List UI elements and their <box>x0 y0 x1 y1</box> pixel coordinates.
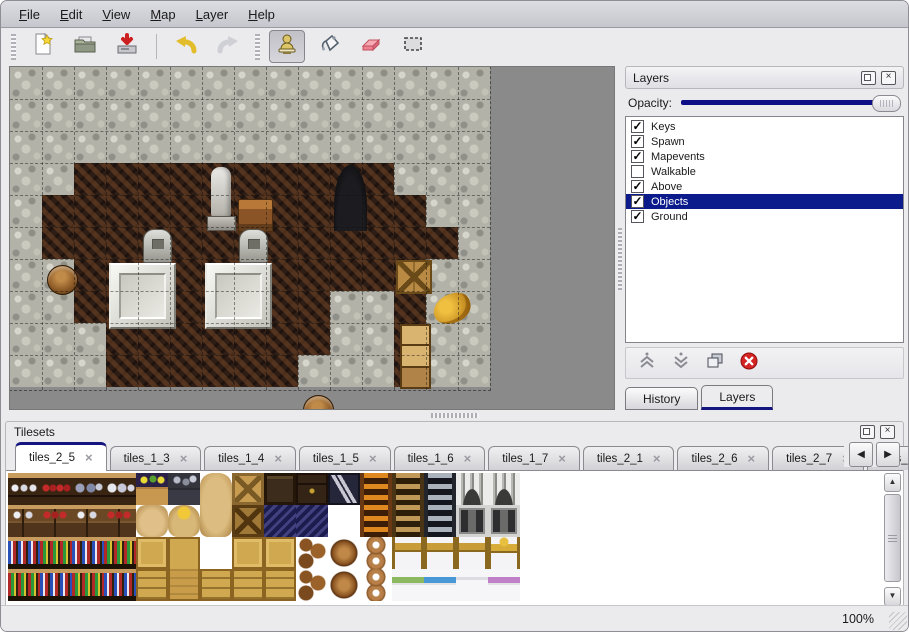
map-tile-wall[interactable] <box>298 99 330 131</box>
tile-crate-w[interactable] <box>200 569 232 601</box>
eraser-tool-button[interactable] <box>353 30 389 63</box>
map-tile-floor[interactable] <box>298 227 330 259</box>
map-tile-wall[interactable] <box>426 195 458 227</box>
close-tab-icon[interactable]: × <box>180 454 188 464</box>
opacity-slider-handle[interactable] <box>872 95 901 112</box>
tile-shelf-dishes[interactable] <box>8 473 40 505</box>
tile-books2[interactable] <box>104 537 136 569</box>
map-tile-wall[interactable] <box>458 195 490 227</box>
tile-stone-door[interactable] <box>488 505 520 537</box>
scroll-tabs-left-button[interactable]: ◀ <box>849 442 873 467</box>
tile-empty[interactable] <box>328 505 360 537</box>
map-tile-wall[interactable] <box>234 131 266 163</box>
map-tile-wall[interactable] <box>10 163 42 195</box>
tile-z-sign[interactable] <box>328 473 360 505</box>
map-object-grave[interactable] <box>239 229 268 263</box>
map-tile-wall[interactable] <box>170 99 202 131</box>
map-tile-wall[interactable] <box>42 131 74 163</box>
tile-cab1[interactable] <box>8 505 40 537</box>
tile-dark-chest[interactable] <box>296 473 328 505</box>
map-tile-wall[interactable] <box>266 99 298 131</box>
map-tile-wall[interactable] <box>458 163 490 195</box>
map-tile-floor[interactable] <box>74 163 106 195</box>
close-panel-icon[interactable]: × <box>880 425 895 439</box>
map-tile-wall[interactable] <box>10 67 42 99</box>
app-window: FileEditViewMapLayerHelp <box>0 0 909 632</box>
tile-empty[interactable] <box>520 505 552 537</box>
tile-cab2[interactable] <box>104 505 136 537</box>
map-tile-wall[interactable] <box>10 195 42 227</box>
map-tile-wall[interactable] <box>362 131 394 163</box>
map-tile-wall[interactable] <box>10 323 42 355</box>
layer-list[interactable]: ✓Keys✓Spawn✓MapeventsWalkable✓Above✓Obje… <box>625 116 904 343</box>
duplicate-layer-button[interactable] <box>704 352 726 374</box>
grid-line <box>266 67 267 390</box>
tile-crate-x[interactable] <box>232 473 264 505</box>
close-tab-icon[interactable]: × <box>748 454 756 464</box>
tileset-tab-tiles_1_6[interactable]: tiles_1_6× <box>394 446 486 470</box>
map-tile-wall[interactable] <box>10 355 42 387</box>
menubar: FileEditViewMapLayerHelp <box>1 1 908 28</box>
map-tile-wall[interactable] <box>42 355 74 387</box>
tile-dark-crate[interactable] <box>264 473 296 505</box>
tile-books1[interactable] <box>40 569 72 601</box>
map-tile-wall[interactable] <box>298 131 330 163</box>
grid-line <box>10 195 490 196</box>
tile-bed-purple[interactable] <box>488 569 520 601</box>
map-tile-floor[interactable] <box>106 227 138 259</box>
tilesets-panel-title: Tilesets <box>14 425 55 439</box>
menu-item-layer[interactable]: Layer <box>186 3 239 26</box>
opacity-label: Opacity: <box>628 96 672 110</box>
rect-select-tool-button[interactable] <box>395 30 431 63</box>
map-tile-wall[interactable] <box>330 67 362 99</box>
checkbox-checked[interactable]: ✓ <box>631 150 644 163</box>
scroll-up-button[interactable]: ▲ <box>884 473 901 492</box>
grid-line <box>10 291 490 292</box>
tile-ladder-o[interactable] <box>360 473 392 505</box>
tile-gold-sack[interactable] <box>168 505 200 537</box>
map-object-barrel[interactable] <box>303 395 334 410</box>
tile-arch[interactable] <box>456 473 488 505</box>
tile-bed-blue[interactable] <box>424 569 456 601</box>
map-tile-wall[interactable] <box>10 259 42 291</box>
map-tile-wall[interactable] <box>330 355 362 387</box>
tile-crate-w[interactable] <box>232 569 264 601</box>
tile-empty[interactable] <box>200 537 232 569</box>
map-tile-wall[interactable] <box>458 227 490 259</box>
menu-item-help[interactable]: Help <box>238 3 285 26</box>
map-tile-floor[interactable] <box>266 163 298 195</box>
map-tile-wall[interactable] <box>202 99 234 131</box>
map-tile-floor[interactable] <box>170 227 202 259</box>
float-panel-icon[interactable] <box>861 71 876 85</box>
map-tile-floor[interactable] <box>330 259 362 291</box>
eraser-tool-icon <box>359 32 383 61</box>
tile-empty[interactable] <box>520 537 552 569</box>
tile-blue-pile[interactable] <box>296 505 328 537</box>
scroll-down-button[interactable]: ▼ <box>884 587 901 606</box>
tile-crate[interactable] <box>264 537 296 569</box>
grid-line <box>394 67 395 390</box>
tilesets-panel-header: Tilesets × <box>6 422 903 442</box>
tile-bed-white[interactable] <box>456 569 488 601</box>
tile-bed-head[interactable] <box>392 537 424 569</box>
map-tile-wall[interactable] <box>74 355 106 387</box>
menu-item-map[interactable]: Map <box>140 3 185 26</box>
map-tile-wall[interactable] <box>426 67 458 99</box>
undo-button[interactable] <box>168 30 204 63</box>
map-tile-wall[interactable] <box>362 291 394 323</box>
tab-layers[interactable]: Layers <box>701 385 773 410</box>
map-tile-wall[interactable] <box>426 99 458 131</box>
map-tile-wall[interactable] <box>10 99 42 131</box>
tile-books1[interactable] <box>104 569 136 601</box>
map-content[interactable] <box>10 67 490 390</box>
tileset-tab-tiles_2_1[interactable]: tiles_2_1× <box>583 446 675 470</box>
map-tile-wall[interactable] <box>298 355 330 387</box>
tile-sack[interactable] <box>136 505 168 537</box>
tile-crate-tall2[interactable] <box>168 569 200 601</box>
map-tile-wall[interactable] <box>74 323 106 355</box>
map-tile-wall[interactable] <box>458 99 490 131</box>
tileset-tab-tiles_2_6[interactable]: tiles_2_6× <box>677 446 769 470</box>
grid-line <box>458 67 459 390</box>
map-tile-floor[interactable] <box>298 291 330 323</box>
map-tile-floor[interactable] <box>106 195 138 227</box>
save-button[interactable] <box>109 30 145 63</box>
map-tile-wall[interactable] <box>234 99 266 131</box>
tile-empty[interactable] <box>520 473 552 505</box>
map-tile-wall[interactable] <box>266 131 298 163</box>
delete-layer-button[interactable] <box>738 352 760 374</box>
map-tile-wall[interactable] <box>106 131 138 163</box>
tileset-tab-label: tiles_1_6 <box>408 453 454 465</box>
map-tile-wall[interactable] <box>106 99 138 131</box>
map-tile-wall[interactable] <box>458 259 490 291</box>
tile-books2[interactable] <box>72 569 104 601</box>
map-tile-wall[interactable] <box>394 163 426 195</box>
layer-row-spawn[interactable]: ✓Spawn <box>626 134 903 149</box>
tile-crate-w[interactable] <box>264 569 296 601</box>
map-tile-floor[interactable] <box>42 195 74 227</box>
tile-books2[interactable] <box>40 537 72 569</box>
tile-ladder-b[interactable] <box>392 473 424 505</box>
map-tile-floor[interactable] <box>138 195 170 227</box>
tile-empty[interactable] <box>520 569 552 601</box>
close-panel-icon[interactable]: × <box>881 71 896 85</box>
map-tile-floor[interactable] <box>394 195 426 227</box>
tile-cab2[interactable] <box>40 505 72 537</box>
tile-stone-door[interactable] <box>456 505 488 537</box>
map-tile-floor[interactable] <box>74 291 106 323</box>
tile-crate-tall[interactable] <box>168 537 200 569</box>
map-tile-wall[interactable] <box>426 163 458 195</box>
map-tile-wall[interactable] <box>458 323 490 355</box>
grid-line <box>10 131 490 132</box>
horizontal-splitter[interactable] <box>1 410 908 421</box>
tile-bed-head[interactable] <box>424 537 456 569</box>
tile-shelf-red[interactable] <box>40 473 72 505</box>
map-tile-wall[interactable] <box>42 291 74 323</box>
map-tile-wall[interactable] <box>74 99 106 131</box>
tile-pots[interactable] <box>360 569 392 601</box>
splitter-grip[interactable] <box>431 413 479 418</box>
map-tile-floor[interactable] <box>362 163 394 195</box>
opacity-slider-track <box>681 100 898 105</box>
tileset-scrollbar[interactable]: ▲ ▼ <box>884 473 901 606</box>
map-tile-floor[interactable] <box>170 195 202 227</box>
tile-corn[interactable] <box>136 473 168 505</box>
stamp-tool-button[interactable] <box>269 30 305 63</box>
tile-shelf-pots[interactable] <box>72 473 104 505</box>
tileset-tab-label: tiles_1_7 <box>502 453 548 465</box>
layer-row-above[interactable]: ✓Above <box>626 179 903 194</box>
map-tile-floor[interactable] <box>394 291 426 323</box>
map-tile-wall[interactable] <box>10 227 42 259</box>
map-tile-wall[interactable] <box>394 99 426 131</box>
map-tile-wall[interactable] <box>330 131 362 163</box>
checkbox-unchecked[interactable] <box>631 165 644 178</box>
map-tile-wall[interactable] <box>330 291 362 323</box>
checkbox-checked[interactable]: ✓ <box>631 120 644 133</box>
map-tile-wall[interactable] <box>138 67 170 99</box>
tile-books1[interactable] <box>72 537 104 569</box>
scroll-tabs-right-button[interactable]: ▶ <box>876 442 900 467</box>
tileset-tab-tiles_1_3[interactable]: tiles_1_3× <box>110 446 202 470</box>
opacity-slider[interactable] <box>681 94 901 111</box>
layer-row-ground[interactable]: ✓Ground <box>626 209 903 224</box>
checkbox-checked[interactable]: ✓ <box>631 210 644 223</box>
tileset-tab-label: tiles_2_6 <box>691 453 737 465</box>
map-tile-wall[interactable] <box>42 67 74 99</box>
layer-row-keys[interactable]: ✓Keys <box>626 119 903 134</box>
map-tile-wall[interactable] <box>362 323 394 355</box>
map-tile-wall[interactable] <box>362 355 394 387</box>
tile-shelf-jugs[interactable] <box>104 473 136 505</box>
map-tile-wall[interactable] <box>74 131 106 163</box>
close-tab-icon[interactable]: × <box>274 454 282 464</box>
map-tile-floor[interactable] <box>298 259 330 291</box>
tile-barrel[interactable] <box>328 537 360 569</box>
map-tile-floor[interactable] <box>234 355 266 387</box>
tile-barrel[interactable] <box>328 569 360 601</box>
raise-layer-button[interactable] <box>636 352 658 374</box>
tileset-tab-tiles_1_5[interactable]: tiles_1_5× <box>299 446 391 470</box>
map-tile-wall[interactable] <box>426 131 458 163</box>
map-tile-wall[interactable] <box>202 131 234 163</box>
checkbox-checked[interactable]: ✓ <box>631 180 644 193</box>
map-tile-wall[interactable] <box>42 323 74 355</box>
map-tile-floor[interactable] <box>138 163 170 195</box>
layer-row-mapevents[interactable]: ✓Mapevents <box>626 149 903 164</box>
close-tab-icon[interactable]: × <box>558 454 566 464</box>
map-tile-wall[interactable] <box>170 67 202 99</box>
tile-crate-w[interactable] <box>136 569 168 601</box>
tileset-view[interactable]: ▲ ▼ <box>6 471 903 608</box>
toolbar-separator <box>156 34 157 59</box>
redo-button[interactable] <box>210 30 246 63</box>
map-tile-floor[interactable] <box>298 323 330 355</box>
map-object-platform[interactable] <box>109 263 176 329</box>
map-tile-floor[interactable] <box>202 227 234 259</box>
map-tile-wall[interactable] <box>362 99 394 131</box>
menu-item-file[interactable]: File <box>9 3 50 26</box>
tile-crate[interactable] <box>232 537 264 569</box>
grid-line <box>234 67 235 390</box>
close-tab-icon[interactable]: × <box>653 454 661 464</box>
map-tile-wall[interactable] <box>10 131 42 163</box>
map-tile-floor[interactable] <box>74 195 106 227</box>
map-tile-floor[interactable] <box>330 227 362 259</box>
map-tile-wall[interactable] <box>74 67 106 99</box>
splitter-grip[interactable] <box>618 228 622 290</box>
map-tile-floor[interactable] <box>170 163 202 195</box>
map-canvas[interactable] <box>9 66 615 410</box>
close-tab-icon[interactable]: × <box>85 453 93 463</box>
map-tile-wall[interactable] <box>234 67 266 99</box>
tile-ladder-g[interactable] <box>424 473 456 505</box>
map-tile-floor[interactable] <box>170 355 202 387</box>
tab-scroll-arrows: ◀ ▶ <box>844 442 900 467</box>
tilesets-panel: Tilesets × tiles_2_5×tiles_1_3×tiles_1_4… <box>5 421 904 609</box>
checkbox-checked[interactable]: ✓ <box>631 195 644 208</box>
tile-ladder-o[interactable] <box>360 505 392 537</box>
map-tile-floor[interactable] <box>362 259 394 291</box>
tab-history[interactable]: History <box>625 387 698 410</box>
map-tile-wall[interactable] <box>394 131 426 163</box>
tile-sack-top[interactable] <box>200 473 232 505</box>
close-tab-icon[interactable]: × <box>464 454 472 464</box>
redo-icon <box>216 32 240 61</box>
map-tile-wall[interactable] <box>330 323 362 355</box>
tileset-tab-label: tiles_2_1 <box>597 453 643 465</box>
map-tile-floor[interactable] <box>74 227 106 259</box>
tile-cab1[interactable] <box>72 505 104 537</box>
tile-books2[interactable] <box>8 569 40 601</box>
tile-barrels[interactable] <box>296 537 328 569</box>
lower-layer-icon <box>671 351 691 376</box>
fill-tool-icon <box>317 32 341 61</box>
tile-pots[interactable] <box>360 537 392 569</box>
open-button[interactable] <box>67 30 103 63</box>
map-tile-wall[interactable] <box>458 131 490 163</box>
menu-item-edit[interactable]: Edit <box>50 3 92 26</box>
fill-tool-button[interactable] <box>311 30 347 63</box>
map-tile-wall[interactable] <box>42 99 74 131</box>
map-tile-wall[interactable] <box>362 67 394 99</box>
float-panel-icon[interactable] <box>860 425 875 439</box>
map-tile-floor[interactable] <box>106 355 138 387</box>
map-tile-wall[interactable] <box>138 99 170 131</box>
toolbar-drag-handle[interactable] <box>11 34 16 60</box>
menu-item-view[interactable]: View <box>92 3 140 26</box>
zoom-level-status: 100% <box>842 612 874 626</box>
map-tile-floor[interactable] <box>202 355 234 387</box>
tile-blue-pile[interactable] <box>264 505 296 537</box>
tile-crate[interactable] <box>136 537 168 569</box>
map-object-platform[interactable] <box>205 263 272 329</box>
map-tile-wall[interactable] <box>202 67 234 99</box>
layer-row-walkable[interactable]: Walkable <box>626 164 903 179</box>
statusbar: 100% <box>1 605 908 631</box>
map-tile-wall[interactable] <box>298 67 330 99</box>
map-tile-floor[interactable] <box>266 355 298 387</box>
map-tile-wall[interactable] <box>330 99 362 131</box>
tile-bed-green[interactable] <box>392 569 424 601</box>
grid-line <box>330 67 331 390</box>
tileset-tile-grid[interactable] <box>8 473 552 601</box>
tile-ladder-g[interactable] <box>424 505 456 537</box>
map-tile-wall[interactable] <box>138 131 170 163</box>
map-object-grave[interactable] <box>143 229 172 263</box>
toolbar-drag-handle[interactable] <box>255 34 260 60</box>
map-tile-floor[interactable] <box>106 163 138 195</box>
map-tile-wall[interactable] <box>458 67 490 99</box>
vertical-splitter[interactable] <box>615 66 625 410</box>
map-tile-floor[interactable] <box>394 227 426 259</box>
tile-bed-head[interactable] <box>456 537 488 569</box>
layer-name: Mapevents <box>651 151 705 163</box>
tile-sack-bot[interactable] <box>200 505 232 537</box>
layer-buttons <box>625 347 904 379</box>
map-tile-floor[interactable] <box>362 227 394 259</box>
window-resize-grip[interactable] <box>889 612 907 630</box>
map-tile-wall[interactable] <box>394 67 426 99</box>
map-tile-floor[interactable] <box>138 355 170 387</box>
map-object-statue[interactable] <box>206 165 236 231</box>
map-tile-floor[interactable] <box>426 227 458 259</box>
map-tile-wall[interactable] <box>10 291 42 323</box>
tile-books1[interactable] <box>8 537 40 569</box>
tileset-tab-tiles_1_7[interactable]: tiles_1_7× <box>488 446 580 470</box>
tile-coal[interactable] <box>168 473 200 505</box>
lower-layer-button[interactable] <box>670 352 692 374</box>
close-tab-icon[interactable]: × <box>369 454 377 464</box>
new-file-button[interactable] <box>25 30 61 63</box>
scrollbar-thumb[interactable] <box>884 494 901 582</box>
tile-ladder-b[interactable] <box>392 505 424 537</box>
scrollbar-track[interactable] <box>884 494 901 585</box>
layer-row-objects[interactable]: ✓Objects <box>626 194 903 209</box>
tile-bed-head2[interactable] <box>488 537 520 569</box>
map-tile-floor[interactable] <box>298 195 330 227</box>
map-tile-wall[interactable] <box>42 163 74 195</box>
tileset-tab-tiles_1_4[interactable]: tiles_1_4× <box>204 446 296 470</box>
map-tile-wall[interactable] <box>170 131 202 163</box>
map-tile-floor[interactable] <box>298 163 330 195</box>
tileset-tab-label: tiles_2_7 <box>786 453 832 465</box>
grid-line <box>10 323 490 324</box>
tileset-tab-label: tiles_1_4 <box>218 453 264 465</box>
map-tile-wall[interactable] <box>458 355 490 387</box>
grid-line <box>138 67 139 390</box>
layer-name: Walkable <box>651 166 696 178</box>
tile-barrels[interactable] <box>296 569 328 601</box>
map-tile-wall[interactable] <box>106 67 138 99</box>
tile-crate-x2[interactable] <box>232 505 264 537</box>
grid-line <box>426 67 427 390</box>
map-tile-floor[interactable] <box>74 259 106 291</box>
save-icon <box>115 32 139 61</box>
map-tile-wall[interactable] <box>266 67 298 99</box>
tileset-tab-tiles_2_5[interactable]: tiles_2_5× <box>15 442 107 471</box>
checkbox-checked[interactable]: ✓ <box>631 135 644 148</box>
map-tile-floor[interactable] <box>42 227 74 259</box>
tile-arch[interactable] <box>488 473 520 505</box>
map-tile-floor[interactable] <box>234 163 266 195</box>
tileset-tabs: tiles_2_5×tiles_1_3×tiles_1_4×tiles_1_5×… <box>6 442 903 471</box>
